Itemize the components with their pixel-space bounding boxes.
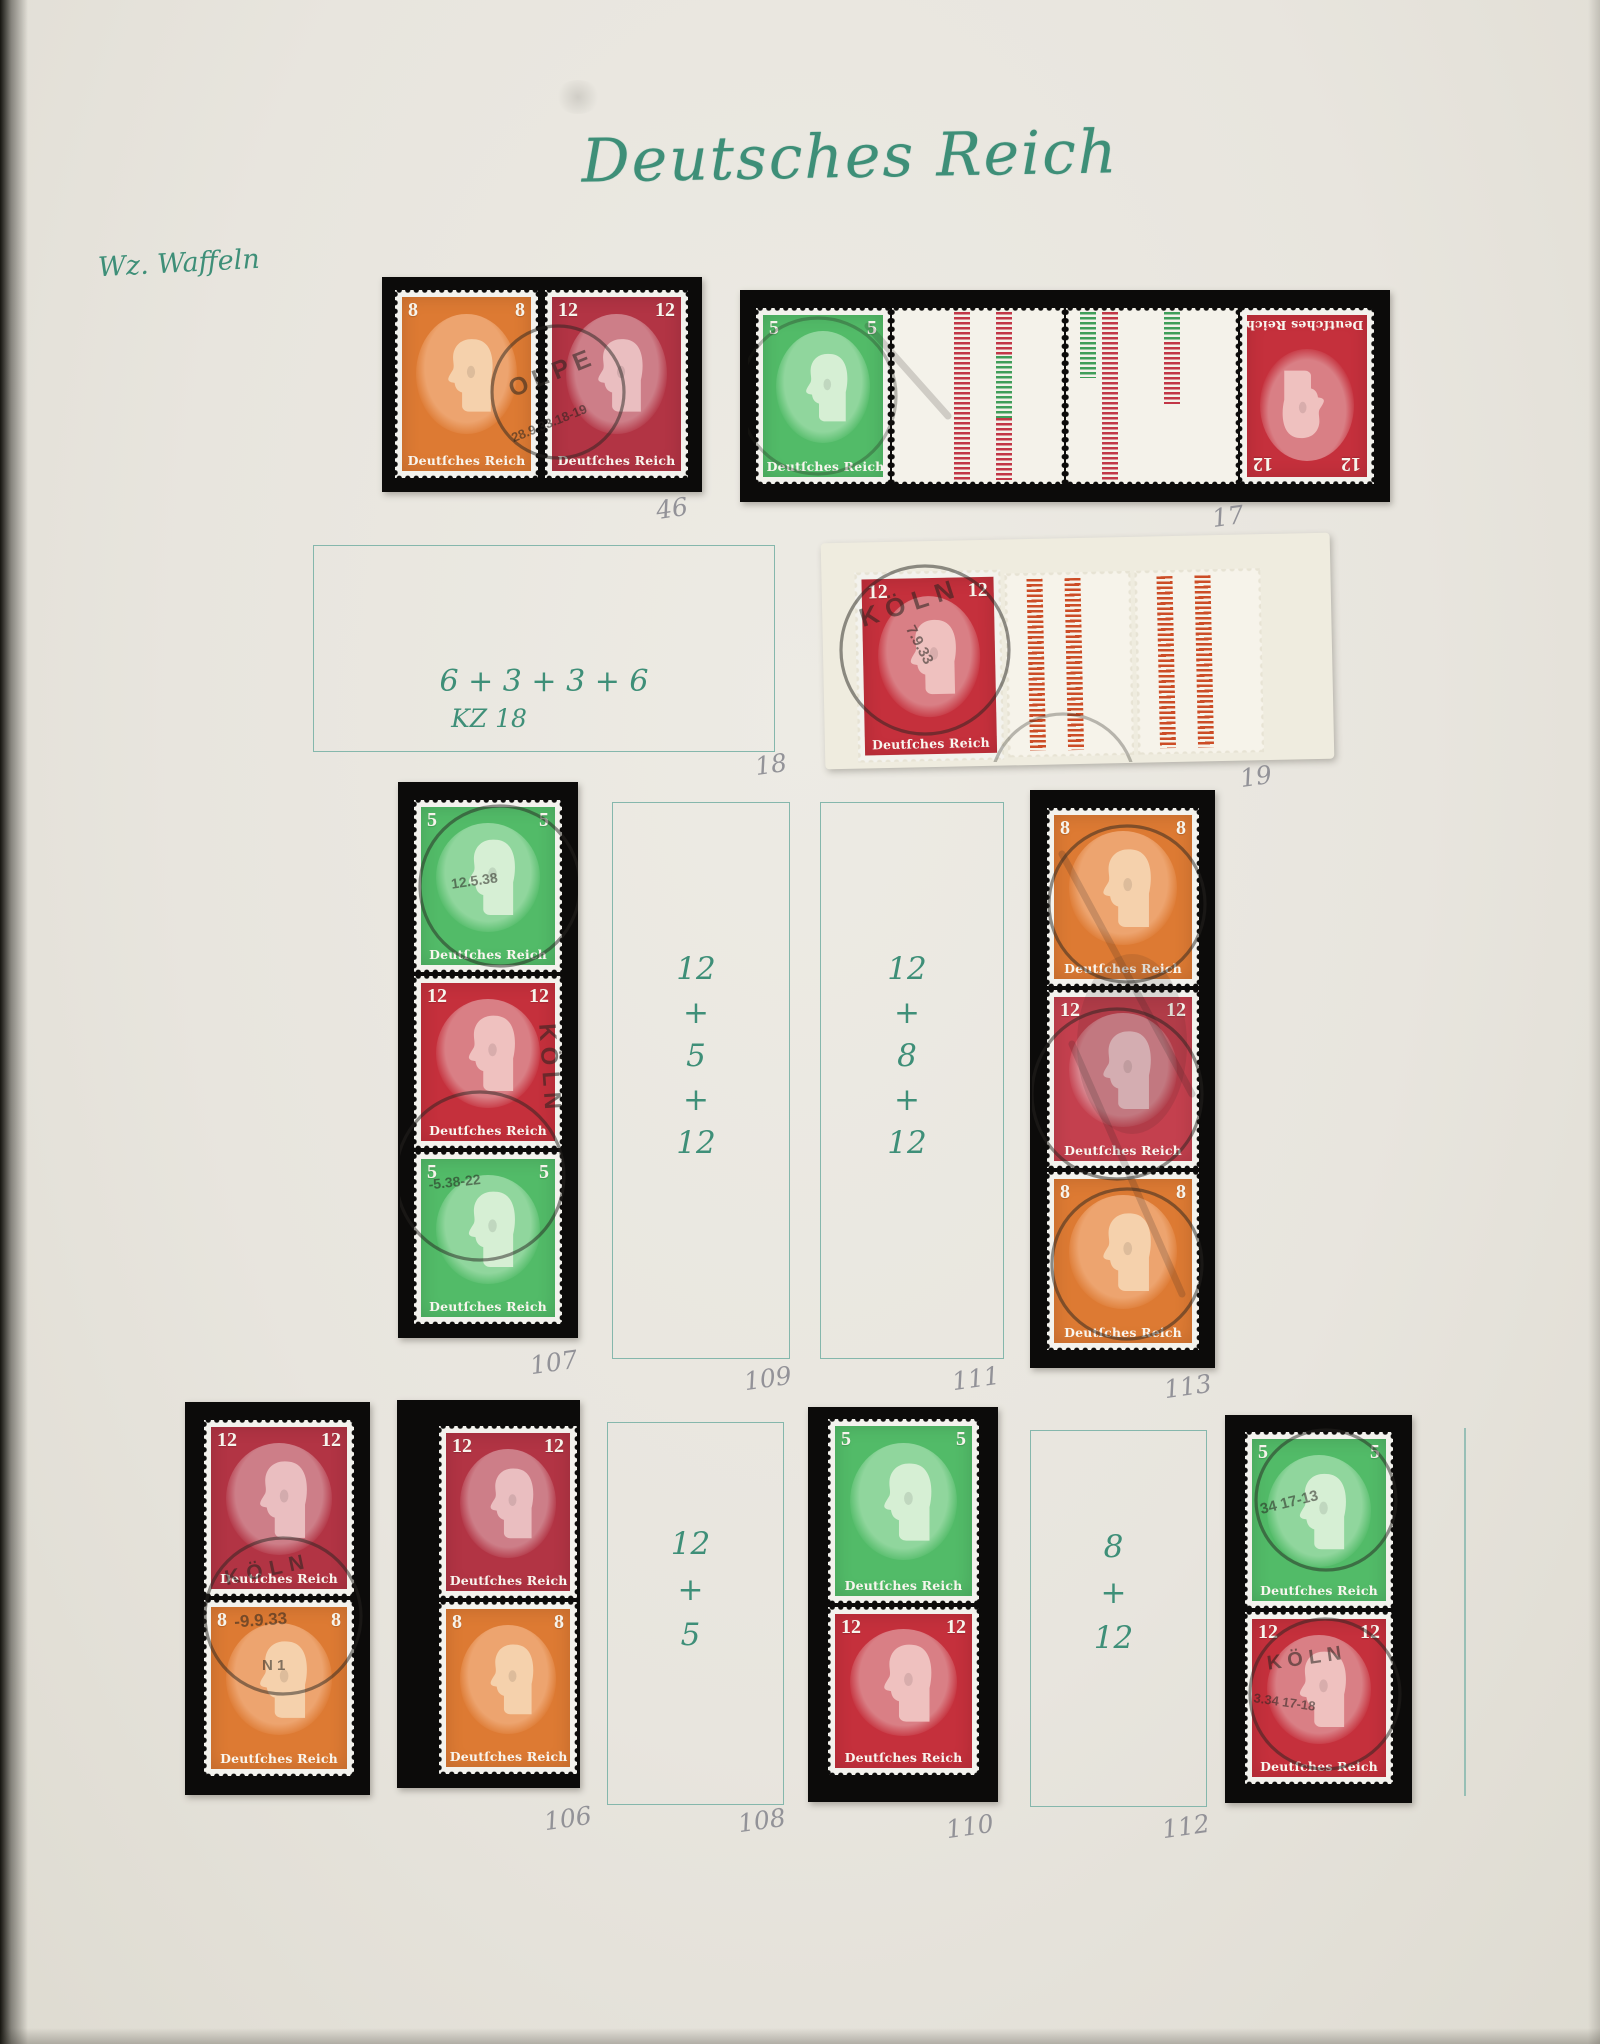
stamp-inscription: Deutſches Reich — [406, 453, 527, 468]
handwritten-plus: + — [894, 997, 920, 1030]
gutter-bar — [1156, 576, 1176, 748]
handwritten-value: 8 — [1104, 1531, 1124, 1564]
stamp-inscription: Deutſches Reich — [425, 947, 551, 962]
portrait-oval — [460, 1449, 557, 1558]
handwritten-denominations: 12 + 5 + 12 — [613, 953, 779, 1160]
stamp-12pf-red: 12 12 Deutſches Reich — [828, 1607, 979, 1775]
catalog-number-pencil: 107 — [528, 1345, 579, 1380]
portrait-oval — [1267, 1635, 1372, 1744]
stamp-face: 12 12 Deutſches Reich — [861, 577, 997, 756]
handwritten-value: 12 — [887, 1127, 926, 1160]
gutter-bar — [996, 312, 1012, 356]
catalog-number-pencil: 109 — [742, 1361, 793, 1396]
stamp-on-piece-19: 12 12 Deutſches Reich — [821, 533, 1335, 770]
denomination: 8 — [331, 1609, 341, 1632]
hindenburg-portrait — [1275, 354, 1339, 455]
catalog-number-pencil: 110 — [944, 1809, 995, 1844]
denomination: 12 — [1258, 1621, 1278, 1644]
portrait-oval — [226, 1623, 332, 1735]
stamp-face: 12 12 Deutſches Reich — [1247, 315, 1367, 477]
hindenburg-portrait — [582, 322, 650, 430]
page-edge-shadow — [0, 2028, 1600, 2044]
denomination: 12 — [427, 985, 447, 1008]
denomination: 12 — [1166, 999, 1186, 1022]
stamp-inscription: Deutſches Reich — [1058, 961, 1188, 976]
album-frame-109: 12 + 5 + 12 — [612, 802, 790, 1359]
handwritten-denominations: 6 + 3 + 3 + 6 — [314, 664, 774, 699]
denomination: 12 — [867, 581, 887, 604]
gutter-bar — [996, 356, 1012, 418]
stamp-face: 8 8 Deutſches Reich — [446, 1609, 570, 1767]
gutter-bar — [996, 418, 1012, 480]
stamp-face: 8 8 Deutſches Reich — [211, 1607, 347, 1769]
denomination: 12 — [321, 1429, 341, 1452]
hindenburg-portrait — [475, 1631, 541, 1729]
handwritten-catalog: KZ 18 — [259, 704, 719, 733]
hindenburg-portrait — [791, 338, 855, 439]
stamp-inscription: Deutſches Reich — [425, 1123, 551, 1138]
denomination: 12 — [841, 1616, 861, 1639]
portrait-oval — [1069, 1013, 1177, 1126]
stamp-face: 12 12 Deutſches Reich — [211, 1427, 347, 1589]
stamp-inscription: Deutſches Reich — [1251, 318, 1364, 333]
gutter-label — [892, 308, 1064, 484]
stamp-12pf-carmine: 12 12 Deutſches Reich — [545, 290, 688, 478]
stamp-face: 5 5 Deutſches Reich — [421, 807, 555, 965]
stamp-inscription: Deutſches Reich — [215, 1571, 343, 1586]
catalog-number-pencil: 19 — [1238, 760, 1274, 793]
stamp-inscription: Deutſches Reich — [215, 1751, 343, 1766]
stamp-face: 5 5 Deutſches Reich — [763, 315, 883, 477]
portrait-oval — [436, 823, 541, 932]
denomination: 5 — [427, 809, 437, 832]
stamp-5pf-green: 5 5 Deutſches Reich — [414, 800, 562, 972]
portrait-oval — [1069, 831, 1177, 944]
stamp-inscription: Deutſches Reich — [839, 1750, 968, 1765]
stamp-inscription: Deutſches Reich — [1256, 1759, 1382, 1774]
handwritten-value: 12 — [671, 1528, 710, 1561]
gutter-bar — [1026, 579, 1046, 751]
gutter-label — [1134, 568, 1264, 755]
portrait-oval — [436, 1175, 541, 1284]
gutter-label — [1066, 308, 1238, 484]
handwritten-plus: + — [683, 1084, 709, 1117]
stamp-8pf-orange: 8 8 Deutſches Reich — [1047, 808, 1199, 986]
catalog-number-pencil: 18 — [753, 748, 789, 781]
denomination: 8 — [515, 299, 525, 322]
stamp-face: 12 12 Deutſches Reich — [1252, 1619, 1386, 1777]
stamp-face: 12 12 Deutſches Reich — [1054, 997, 1192, 1161]
denomination: 5 — [1370, 1441, 1380, 1464]
stamp-inscription: Deutſches Reich — [450, 1573, 567, 1588]
stamp-8pf-orange: 8 8 Deutſches Reich — [204, 1600, 354, 1776]
stamp-face: 12 12 Deutſches Reich — [835, 1614, 972, 1768]
denomination: 8 — [408, 299, 418, 322]
catalog-number-pencil: 106 — [542, 1801, 593, 1836]
stamp-mount-107: 5 5 Deutſches Reich 12 12 Deutſches Reic… — [398, 782, 578, 1338]
catalog-number-pencil: 17 — [1210, 500, 1246, 533]
handwritten-value: 8 — [897, 1040, 917, 1073]
handwritten-value: 12 — [676, 1127, 715, 1160]
stamp-inscription: Deutſches Reich — [1058, 1143, 1188, 1158]
stamp-face: 8 8 Deutſches Reich — [402, 297, 531, 471]
handwritten-value: 5 — [686, 1040, 706, 1073]
hindenburg-portrait — [243, 1450, 315, 1551]
stamp-12pf-carmine: 12 12 Deutſches Reich — [439, 1426, 577, 1598]
scan-blemish — [555, 80, 601, 114]
stamp-12pf-carmine: 12 12 Deutſches Reich — [204, 1420, 354, 1596]
denomination: 5 — [539, 1161, 549, 1184]
handwritten-plus: + — [678, 1574, 704, 1607]
stamp-face: 12 12 Deutſches Reich — [446, 1433, 570, 1591]
handwritten-denominations: 12 + 5 — [608, 1528, 773, 1652]
gutter-label — [1004, 571, 1134, 758]
handwritten-value: 12 — [1094, 1622, 1133, 1655]
handwritten-plus: + — [683, 997, 709, 1030]
denomination: 8 — [217, 1609, 227, 1632]
portrait-oval — [226, 1443, 332, 1555]
stamp-12pf-red: 12 12 Deutſches Reich — [414, 976, 562, 1148]
denomination: 12 — [529, 985, 549, 1008]
denomination: 12 — [967, 579, 987, 602]
stamp-inscription: Deutſches Reich — [425, 1299, 551, 1314]
catalog-number-pencil: 108 — [736, 1803, 787, 1838]
handwritten-plus: + — [1101, 1577, 1127, 1610]
stamp-mount-106: 12 12 Deutſches Reich 8 8 Deutſches Reic… — [397, 1400, 580, 1788]
denomination: 12 — [1360, 1621, 1380, 1644]
portrait-oval — [460, 1625, 557, 1734]
denomination: 5 — [867, 317, 877, 340]
portrait-oval — [1260, 349, 1354, 461]
denomination: 5 — [427, 1161, 437, 1184]
stamp-mount-17: 5 5 Deutſches Reich 12 12 — [740, 290, 1390, 502]
denomination: 8 — [1176, 1181, 1186, 1204]
stamp-face: 5 5 Deutſches Reich — [1252, 1439, 1386, 1601]
album-frame-18: 6 + 3 + 3 + 6 KZ 18 — [313, 545, 775, 752]
catalog-number-pencil: 112 — [1160, 1809, 1211, 1844]
denomination: 5 — [1258, 1441, 1268, 1464]
catalog-number-pencil: 111 — [950, 1361, 1001, 1396]
hindenburg-portrait — [893, 602, 965, 713]
denomination: 5 — [956, 1428, 966, 1451]
stamp-face: 8 8 Deutſches Reich — [1054, 815, 1192, 979]
hindenburg-portrait — [867, 1636, 940, 1732]
stamp-mount-105: 12 12 Deutſches Reich 8 8 Deutſches Reic… — [185, 1402, 370, 1795]
denomination: 5 — [539, 809, 549, 832]
handwritten-value: 12 — [887, 953, 926, 986]
catalog-number-pencil: 113 — [1162, 1369, 1213, 1404]
portrait-oval — [416, 314, 517, 434]
stamp-5pf-green: 5 5 Deutſches Reich — [828, 1419, 979, 1603]
album-frame-112: 8 + 12 — [1030, 1430, 1207, 1807]
hindenburg-portrait — [475, 1455, 541, 1553]
watermark-note: Wz. Waffeln — [97, 244, 260, 283]
hindenburg-portrait — [1086, 838, 1159, 940]
gutter-bar — [1164, 312, 1180, 342]
stamp-12pf-red-inverted: 12 12 Deutſches Reich — [1240, 308, 1374, 484]
stamp-mount-110: 5 5 Deutſches Reich 12 12 Deutſches Reic… — [808, 1407, 998, 1802]
denomination: 12 — [1341, 452, 1361, 475]
gutter-bar — [1080, 312, 1096, 378]
hindenburg-portrait — [452, 1005, 523, 1103]
portrait-oval — [876, 595, 981, 719]
album-frame-fragment — [1464, 1428, 1466, 1796]
portrait-oval — [776, 331, 870, 443]
denomination: 8 — [1060, 817, 1070, 840]
stamp-5pf-green: 5 5 Deutſches Reich — [414, 1152, 562, 1324]
stamp-8pf-orange: 8 8 Deutſches Reich — [395, 290, 538, 478]
portrait-oval — [566, 314, 667, 434]
gutter-bar — [1102, 312, 1118, 480]
page-title: Deutsches Reich — [559, 117, 1140, 197]
denomination: 12 — [544, 1435, 564, 1458]
denomination: 12 — [452, 1435, 472, 1458]
stamp-inscription: Deutſches Reich — [767, 459, 880, 474]
denomination: 5 — [841, 1428, 851, 1451]
portrait-oval — [1267, 1455, 1372, 1567]
stamp-inscription: Deutſches Reich — [1256, 1583, 1382, 1598]
stamp-face: 12 12 Deutſches Reich — [552, 297, 681, 471]
stamp-face: 5 5 Deutſches Reich — [421, 1159, 555, 1317]
stamp-inscription: Deutſches Reich — [450, 1749, 567, 1764]
handwritten-denominations: 8 + 12 — [1031, 1531, 1196, 1655]
gutter-bar — [954, 312, 970, 480]
catalog-number-pencil: 46 — [654, 492, 690, 525]
hindenburg-portrait — [243, 1630, 315, 1731]
stamp-12pf-red: 12 12 Deutſches Reich — [854, 570, 1004, 763]
handwritten-value: 12 — [676, 953, 715, 986]
denomination: 8 — [554, 1611, 564, 1634]
denomination: 8 — [1176, 817, 1186, 840]
denomination: 12 — [1253, 452, 1273, 475]
hindenburg-portrait — [452, 1181, 523, 1279]
stamp-mount-114: 5 5 Deutſches Reich 12 12 Deutſches Reic… — [1225, 1415, 1412, 1803]
stamp-inscription: Deutſches Reich — [869, 735, 993, 753]
hindenburg-portrait — [1283, 1641, 1354, 1739]
gutter-bar — [1194, 575, 1214, 747]
album-frame-111: 12 + 8 + 12 — [820, 802, 1004, 1359]
stamp-mount-113: 8 8 Deutſches Reich 12 12 Deutſches Reic… — [1030, 790, 1215, 1368]
hindenburg-portrait — [1086, 1202, 1159, 1304]
stamp-inscription: Deutſches Reich — [1058, 1325, 1188, 1340]
gutter-bar — [1064, 578, 1084, 750]
denomination: 12 — [558, 299, 578, 322]
stamp-5pf-green: 5 5 Deutſches Reich — [756, 308, 890, 484]
stamp-12pf-red: 12 12 Deutſches Reich — [1245, 1612, 1393, 1784]
handwritten-value: 5 — [681, 1619, 701, 1652]
album-frame-108: 12 + 5 — [607, 1422, 784, 1805]
denomination: 5 — [769, 317, 779, 340]
handwritten-plus: + — [894, 1084, 920, 1117]
stamp-8pf-orange: 8 8 Deutſches Reich — [1047, 1172, 1199, 1350]
denomination: 12 — [1060, 999, 1080, 1022]
stamp-inscription: Deutſches Reich — [839, 1578, 968, 1593]
stamp-5pf-green: 5 5 Deutſches Reich — [1245, 1432, 1393, 1608]
stamp-inscription: Deutſches Reich — [556, 453, 677, 468]
page-edge-shadow — [1588, 0, 1600, 2044]
denomination: 12 — [946, 1616, 966, 1639]
hindenburg-portrait — [1283, 1462, 1354, 1563]
portrait-oval — [850, 1629, 957, 1735]
hindenburg-portrait — [432, 322, 500, 430]
hindenburg-portrait — [1086, 1020, 1159, 1122]
handwritten-denominations: 12 + 8 + 12 — [821, 953, 993, 1160]
stamp-face: 8 8 Deutſches Reich — [1054, 1179, 1192, 1343]
portrait-oval — [1069, 1195, 1177, 1308]
denomination: 8 — [1060, 1181, 1070, 1204]
stamp-mount-46: 8 8 Deutſches Reich 12 12 Deutſches Reic… — [382, 277, 702, 492]
hindenburg-portrait — [867, 1450, 940, 1556]
page-edge-shadow — [0, 0, 28, 2044]
gutter-bar — [1164, 342, 1180, 404]
denomination: 8 — [452, 1611, 462, 1634]
hindenburg-portrait — [452, 829, 523, 927]
album-page: Deutsches Reich Wz. Waffeln 8 8 Deutſche… — [0, 0, 1600, 2044]
stamp-8pf-orange: 8 8 Deutſches Reich — [439, 1602, 577, 1774]
portrait-oval — [436, 999, 541, 1108]
portrait-oval — [850, 1443, 957, 1560]
stamp-face: 12 12 Deutſches Reich — [421, 983, 555, 1141]
denomination: 12 — [217, 1429, 237, 1452]
stamp-12pf-red: 12 12 Deutſches Reich — [1047, 990, 1199, 1168]
stamp-face: 5 5 Deutſches Reich — [835, 1426, 972, 1596]
denomination: 12 — [655, 299, 675, 322]
